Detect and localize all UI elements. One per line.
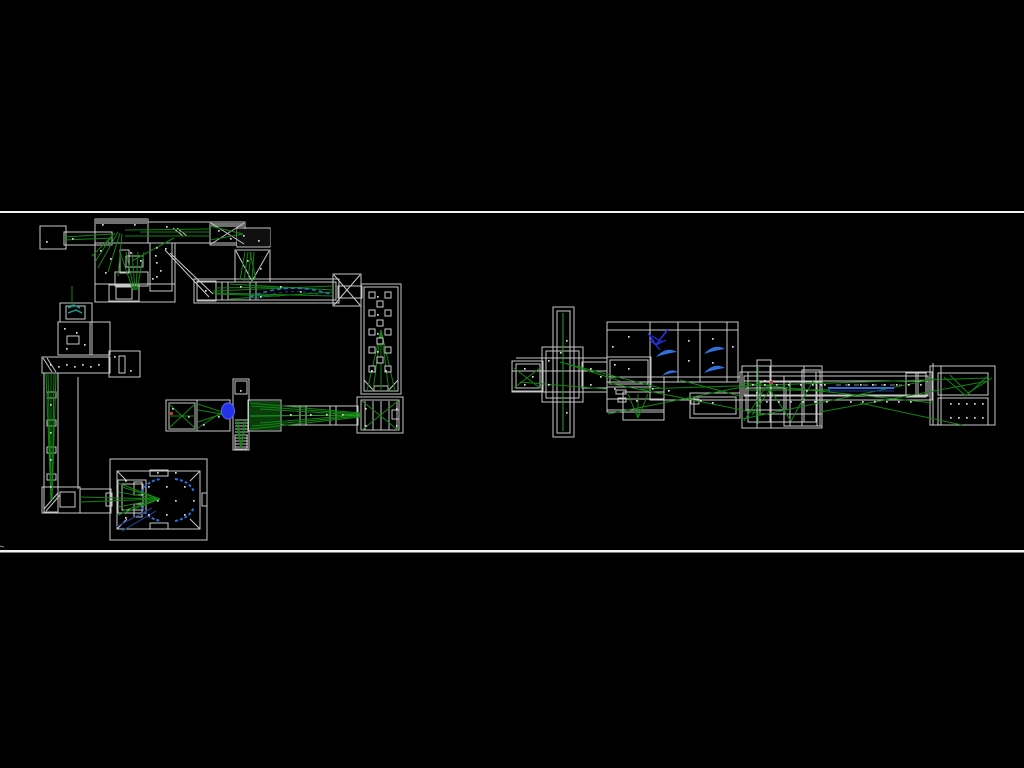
detail-dot xyxy=(950,403,952,405)
detail-dot xyxy=(896,384,898,386)
detail-dot xyxy=(628,368,630,370)
detail-dot xyxy=(862,401,864,403)
detail-dot xyxy=(766,401,768,403)
detail-dot xyxy=(532,376,534,378)
detail-dot xyxy=(628,336,630,338)
hole-square xyxy=(377,357,383,363)
detail-path xyxy=(704,366,725,373)
detail-dot xyxy=(84,344,86,346)
detail-dot xyxy=(134,224,136,226)
hole-square xyxy=(369,347,375,353)
hole-square xyxy=(377,301,383,307)
detail-dot xyxy=(157,472,159,474)
hole-square xyxy=(369,329,375,335)
detail-dot xyxy=(778,401,780,403)
detail-dot xyxy=(260,296,262,298)
detail-dot xyxy=(802,401,804,403)
wall-rect xyxy=(742,366,822,428)
detail-dot xyxy=(812,384,814,386)
detail-dot xyxy=(776,384,778,386)
detail-dot xyxy=(50,459,52,461)
detail-dot xyxy=(72,238,74,240)
wall-rect xyxy=(67,336,79,344)
detail-dot xyxy=(310,414,312,416)
detail-dot xyxy=(156,276,158,278)
wall-rect xyxy=(938,373,988,395)
beam-line xyxy=(250,252,256,280)
detail-dot xyxy=(64,328,66,330)
detail-dot xyxy=(365,425,367,427)
wall-rect xyxy=(119,356,125,373)
wall-line xyxy=(190,519,200,529)
detail-dot xyxy=(548,384,550,386)
detail-dot xyxy=(950,417,952,419)
hole-square xyxy=(377,320,383,326)
detail-dot xyxy=(848,384,850,386)
lens-ellipse xyxy=(222,403,235,419)
detail-dot xyxy=(898,401,900,403)
beam-line xyxy=(198,412,222,428)
detail-dot xyxy=(982,417,984,419)
wall-rect xyxy=(60,492,75,507)
detail-dot xyxy=(612,346,614,348)
detail-dot xyxy=(732,346,734,348)
detail-dot xyxy=(396,425,398,427)
detail-dot xyxy=(172,408,174,410)
detail-dot xyxy=(614,388,616,390)
detail-dot xyxy=(125,480,127,482)
detail-dot xyxy=(377,351,379,353)
detail-dot xyxy=(688,360,690,362)
beam-line xyxy=(64,238,112,240)
detail-path xyxy=(704,347,725,354)
detail-dot xyxy=(240,390,242,392)
detail-dot xyxy=(790,401,792,403)
detail-dot xyxy=(712,402,714,404)
detail-dot xyxy=(342,414,344,416)
detail-dot xyxy=(193,500,195,502)
detail-dot xyxy=(377,314,379,316)
detail-dot xyxy=(240,286,242,288)
wall-rect xyxy=(516,364,540,388)
detail-path xyxy=(142,479,161,492)
detail-dot xyxy=(974,417,976,419)
detail-dot xyxy=(700,400,702,402)
detail-dot xyxy=(566,340,568,342)
hole-square xyxy=(385,329,391,335)
detail-dot xyxy=(156,247,158,249)
detail-dot xyxy=(600,376,602,378)
detail-dot xyxy=(566,412,568,414)
detail-dot xyxy=(50,486,52,488)
detail-dot xyxy=(958,417,960,419)
detail-dot xyxy=(218,416,220,418)
detail-dot xyxy=(820,384,822,386)
detail-dot xyxy=(50,432,52,434)
wall-rect xyxy=(95,243,175,284)
detail-dot xyxy=(826,401,828,403)
detail-dot xyxy=(524,384,526,386)
detail-dot xyxy=(300,291,302,293)
color-mark xyxy=(170,412,173,415)
detail-dot xyxy=(800,384,802,386)
detail-dot xyxy=(175,500,177,502)
detail-dot xyxy=(712,338,714,340)
beam-line xyxy=(216,287,280,288)
detail-dot xyxy=(764,384,766,386)
detail-dot xyxy=(396,408,398,410)
detail-dot xyxy=(756,392,758,394)
hole-square xyxy=(385,310,391,316)
wall-line xyxy=(0,546,4,547)
detail-dot xyxy=(910,401,912,403)
detail-dot xyxy=(114,356,116,358)
hole-square xyxy=(369,310,375,316)
beam-line xyxy=(628,394,638,418)
detail-dot xyxy=(148,514,150,516)
detail-dot xyxy=(50,364,52,366)
filled-rect xyxy=(237,229,270,246)
detail-dot xyxy=(365,408,367,410)
detail-dot xyxy=(377,296,379,298)
detail-dot xyxy=(260,268,262,270)
beam-line xyxy=(122,487,160,499)
wall-rect xyxy=(235,381,247,394)
detail-dot xyxy=(806,390,808,392)
detail-dot xyxy=(184,514,186,516)
beam-line xyxy=(64,234,112,237)
detail-dot xyxy=(908,384,910,386)
beam-line xyxy=(198,414,222,422)
detail-dot xyxy=(752,384,754,386)
detail-dot xyxy=(850,401,852,403)
detail-dot xyxy=(100,250,102,252)
detail-dot xyxy=(788,384,790,386)
filled-rect xyxy=(95,219,148,224)
detail-dot xyxy=(652,388,654,390)
right-assembly xyxy=(512,307,995,437)
detail-dot xyxy=(247,260,249,262)
detail-dot xyxy=(243,235,245,237)
wall-rect xyxy=(202,493,207,506)
detail-dot xyxy=(166,514,168,516)
detail-dot xyxy=(66,364,68,366)
detail-dot xyxy=(165,248,167,250)
detail-dot xyxy=(218,230,220,232)
detail-path xyxy=(662,370,678,376)
beam-line xyxy=(567,364,620,381)
detail-dot xyxy=(874,401,876,403)
detail-dot xyxy=(385,370,387,372)
detail-dot xyxy=(371,370,373,372)
detail-dot xyxy=(175,472,177,474)
detail-dot xyxy=(636,400,638,402)
hole-square xyxy=(377,338,383,344)
detail-dot xyxy=(230,238,232,240)
detail-dot xyxy=(548,360,550,362)
detail-dot xyxy=(280,286,282,288)
wall-rect xyxy=(757,360,771,428)
detail-dot xyxy=(130,370,132,372)
detail-dot xyxy=(872,384,874,386)
hole-square xyxy=(385,347,391,353)
detail-path xyxy=(656,345,660,350)
detail-dot xyxy=(668,390,670,392)
detail-dot xyxy=(66,348,68,350)
detail-dot xyxy=(326,414,328,416)
detail-dot xyxy=(712,362,714,364)
detail-dot xyxy=(82,364,84,366)
detail-dot xyxy=(560,352,562,354)
detail-dot xyxy=(884,384,886,386)
detail-dot xyxy=(152,278,154,280)
detail-dot xyxy=(958,403,960,405)
wall-rect xyxy=(116,287,132,299)
detail-dot xyxy=(614,364,616,366)
beam-line xyxy=(860,403,962,425)
color-mark xyxy=(770,381,773,384)
detail-dot xyxy=(258,240,260,242)
detail-dot xyxy=(860,384,862,386)
cad-viewport[interactable] xyxy=(0,0,1024,768)
left-assembly xyxy=(40,219,403,540)
detail-dot xyxy=(76,332,78,334)
detail-dot xyxy=(203,424,205,426)
detail-dot xyxy=(155,255,157,257)
detail-dot xyxy=(590,368,592,370)
detail-dot xyxy=(166,226,168,228)
wall-rect xyxy=(90,322,110,355)
detail-dot xyxy=(524,368,526,370)
wall-line xyxy=(252,251,269,281)
wall-line xyxy=(190,471,200,481)
wall-rect xyxy=(42,357,110,373)
detail-dot xyxy=(920,384,922,386)
wall-rect xyxy=(392,410,399,419)
detail-dot xyxy=(50,404,52,406)
detail-dot xyxy=(688,340,690,342)
wall-rect xyxy=(40,226,66,249)
hole-square xyxy=(369,292,375,298)
detail-dot xyxy=(590,384,592,386)
detail-path xyxy=(656,350,677,357)
detail-dot xyxy=(156,262,158,264)
detail-path xyxy=(175,479,194,492)
wall-rect xyxy=(150,523,168,529)
detail-dot xyxy=(58,366,60,368)
wall-line xyxy=(170,253,213,294)
detail-dot xyxy=(982,403,984,405)
detail-dot xyxy=(157,500,159,502)
detail-dot xyxy=(130,252,132,254)
wall-rect xyxy=(512,371,607,392)
detail-dot xyxy=(966,417,968,419)
detail-dot xyxy=(886,401,888,403)
detail-dot xyxy=(140,260,142,262)
detail-dot xyxy=(105,272,107,274)
cad-canvas xyxy=(0,0,1024,768)
detail-dot xyxy=(188,416,190,418)
hole-square xyxy=(385,292,391,298)
detail-dot xyxy=(377,333,379,335)
wall-rect xyxy=(582,362,607,388)
detail-dot xyxy=(148,486,150,488)
detail-dot xyxy=(90,366,92,368)
detail-dot xyxy=(205,290,207,292)
detail-dot xyxy=(974,403,976,405)
detail-dot xyxy=(74,366,76,368)
detail-path xyxy=(648,333,656,345)
beam-line xyxy=(125,229,210,230)
detail-dot xyxy=(160,270,162,272)
teal-mark xyxy=(68,310,82,313)
detail-dot xyxy=(166,486,168,488)
detail-dot xyxy=(824,384,826,386)
detail-dot xyxy=(46,241,48,243)
detail-dot xyxy=(98,364,100,366)
wall-rect xyxy=(58,322,92,355)
detail-dot xyxy=(184,486,186,488)
wall-rect xyxy=(746,388,786,410)
beam-line xyxy=(132,238,174,261)
detail-dot xyxy=(290,414,292,416)
detail-dot xyxy=(814,401,816,403)
detail-dot xyxy=(764,380,766,382)
detail-dot xyxy=(125,517,127,519)
detail-dot xyxy=(966,403,968,405)
detail-dot xyxy=(110,258,112,260)
detail-dot xyxy=(102,224,104,226)
